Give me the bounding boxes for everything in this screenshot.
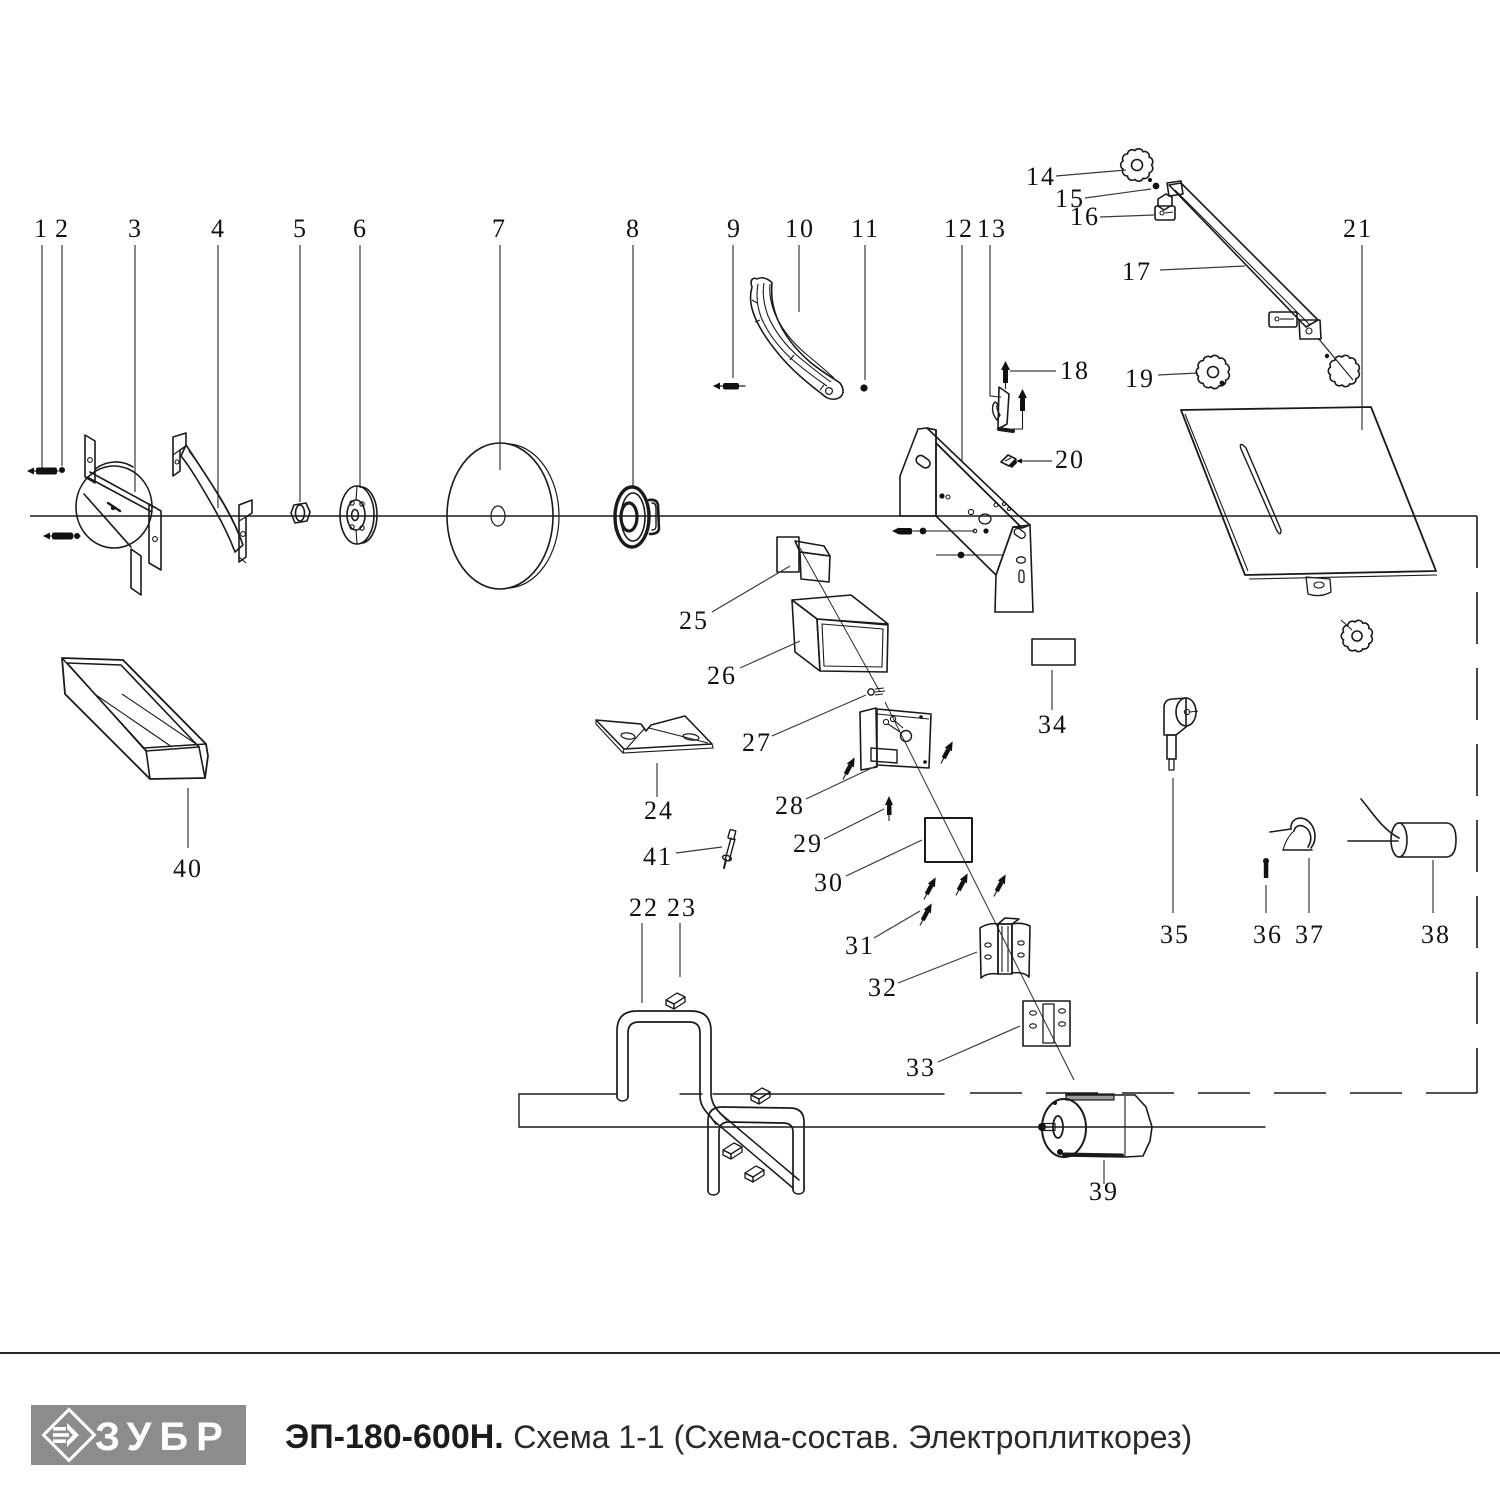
svg-text:5: 5 [293, 214, 308, 243]
svg-text:21: 21 [1343, 214, 1373, 243]
svg-text:37: 37 [1295, 920, 1325, 949]
svg-text:24: 24 [644, 796, 674, 825]
svg-text:27: 27 [742, 728, 772, 757]
svg-text:32: 32 [868, 973, 898, 1002]
svg-text:41: 41 [643, 842, 673, 871]
svg-text:10: 10 [785, 214, 815, 243]
svg-text:20: 20 [1055, 445, 1085, 474]
svg-text:31: 31 [845, 931, 875, 960]
svg-text:1: 1 [34, 214, 49, 243]
svg-text:36: 36 [1253, 920, 1283, 949]
svg-text:7: 7 [492, 214, 507, 243]
svg-text:40: 40 [173, 854, 203, 883]
svg-text:19: 19 [1125, 364, 1155, 393]
svg-text:17: 17 [1122, 257, 1152, 286]
svg-text:9: 9 [727, 214, 742, 243]
svg-text:4: 4 [211, 214, 226, 243]
svg-text:8: 8 [626, 214, 641, 243]
svg-text:ЗУБР: ЗУБР [95, 1415, 231, 1459]
svg-text:26: 26 [707, 661, 737, 690]
svg-text:6: 6 [353, 214, 368, 243]
svg-text:34: 34 [1038, 710, 1068, 739]
svg-text:11: 11 [851, 214, 880, 243]
svg-text:25: 25 [679, 606, 709, 635]
svg-text:22: 22 [629, 893, 659, 922]
svg-text:28: 28 [775, 791, 805, 820]
svg-text:29: 29 [793, 829, 823, 858]
svg-text:33: 33 [906, 1053, 936, 1082]
svg-text:18: 18 [1060, 356, 1090, 385]
svg-text:30: 30 [814, 868, 844, 897]
svg-text:12: 12 [944, 214, 974, 243]
svg-text:23: 23 [667, 893, 697, 922]
svg-text:16: 16 [1070, 202, 1100, 231]
svg-text:38: 38 [1421, 920, 1451, 949]
svg-text:2: 2 [55, 214, 70, 243]
svg-text:35: 35 [1160, 920, 1190, 949]
svg-text:14: 14 [1026, 162, 1056, 191]
svg-text:13: 13 [977, 214, 1007, 243]
svg-text:3: 3 [128, 214, 143, 243]
